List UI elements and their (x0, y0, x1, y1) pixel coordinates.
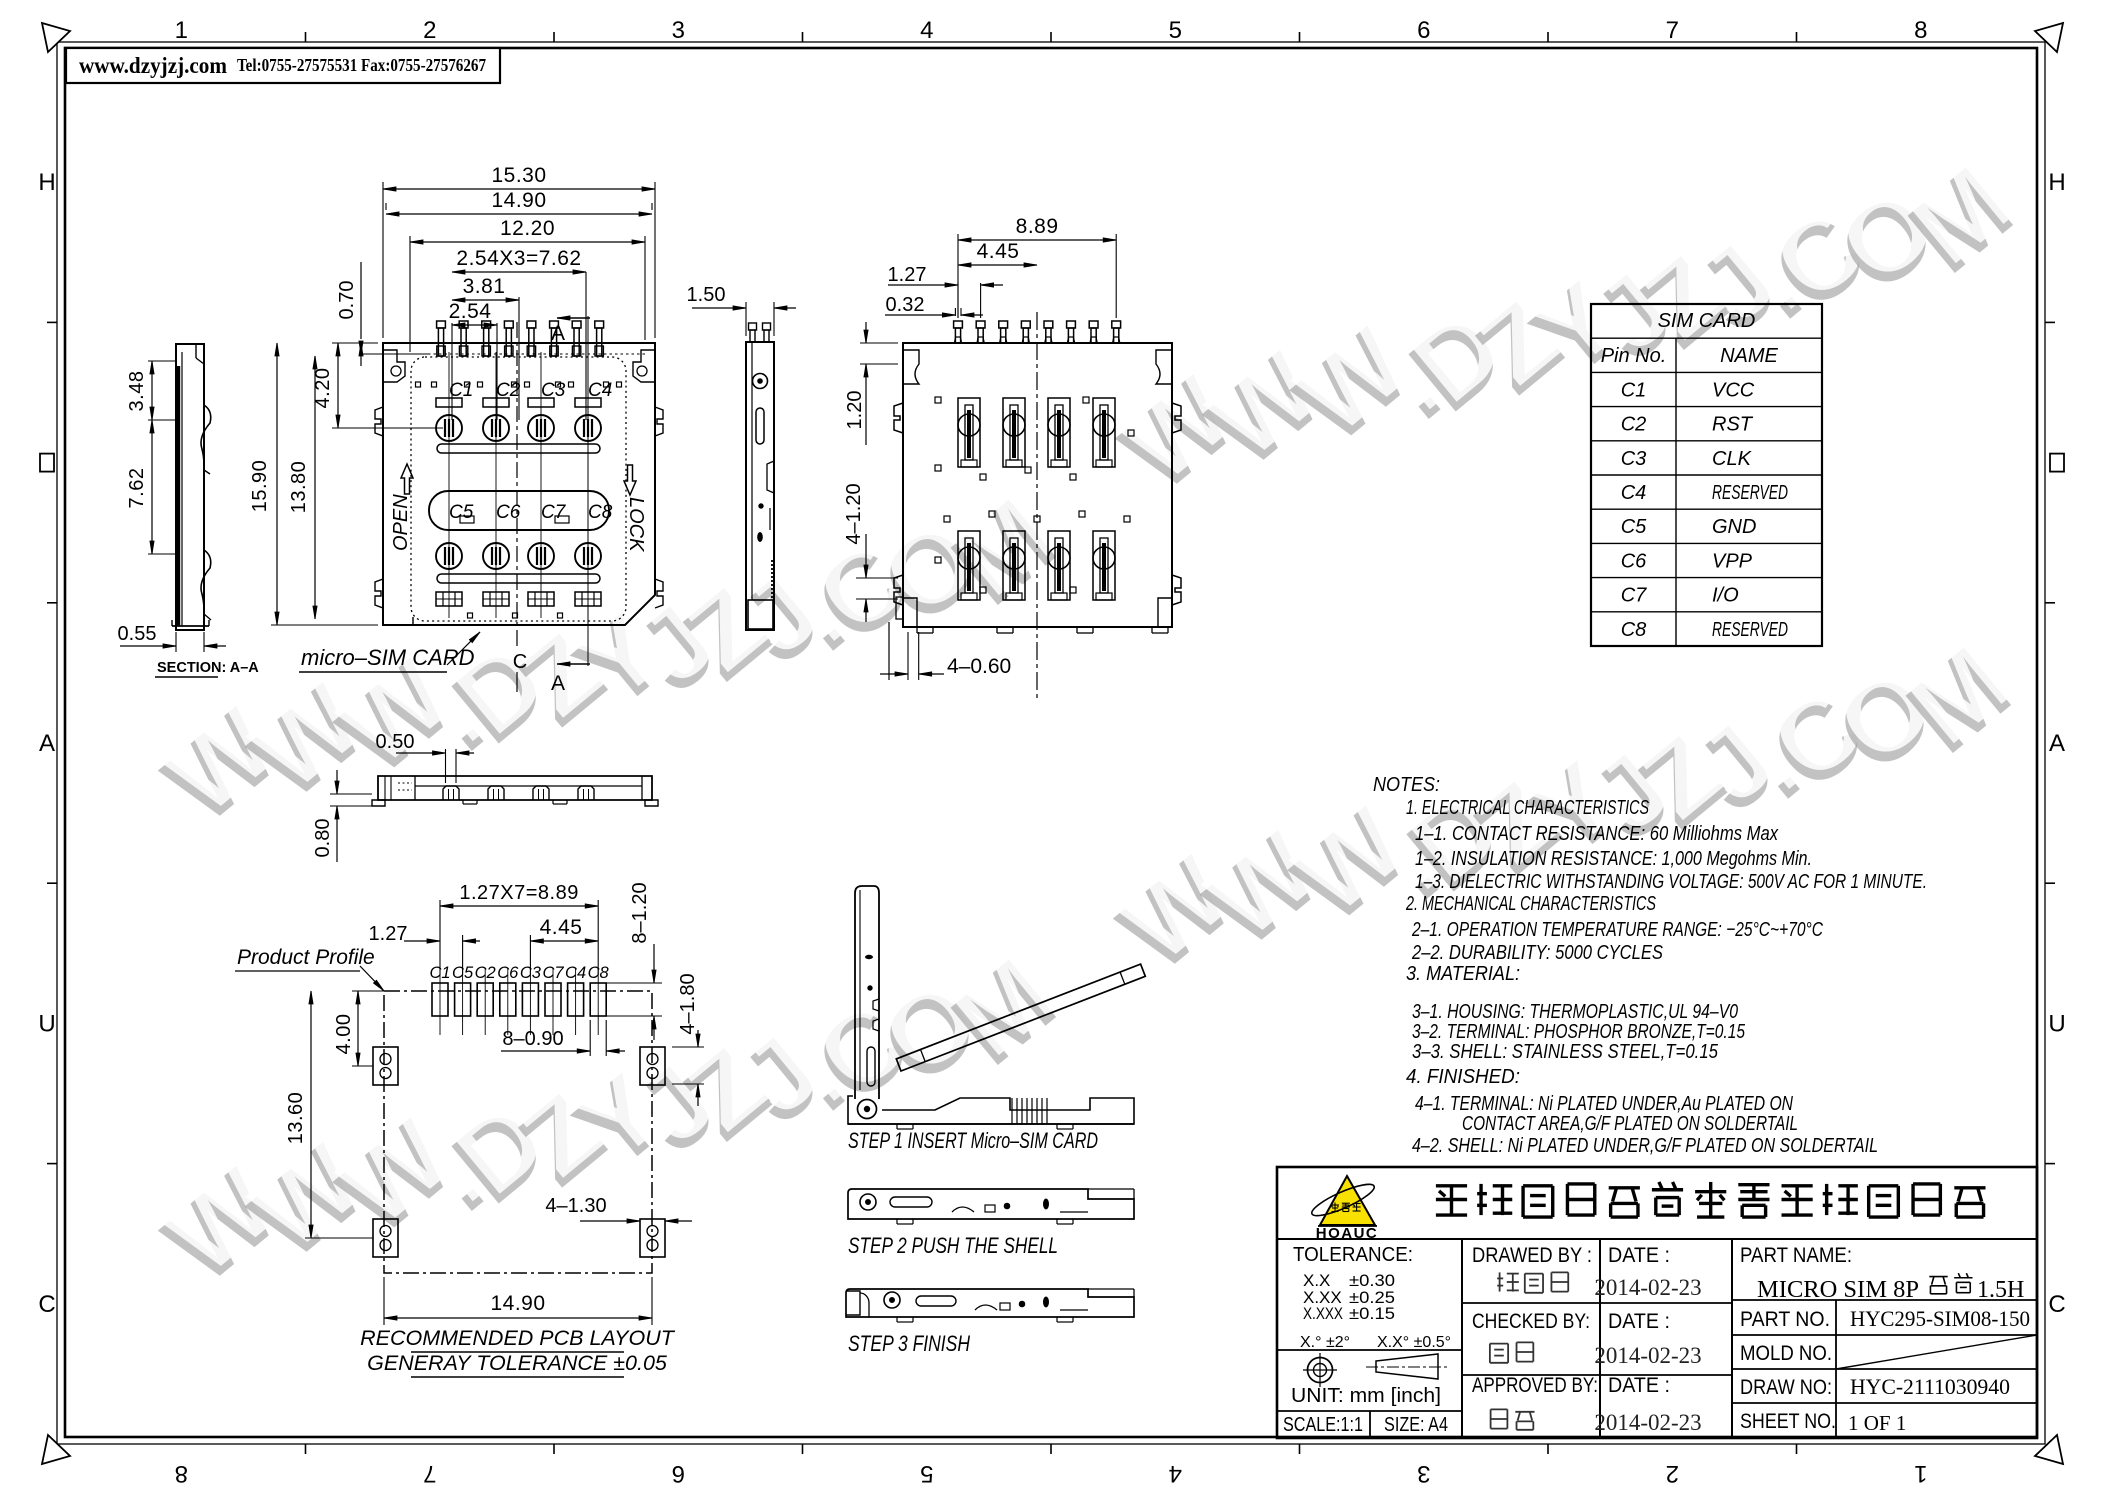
svg-text:1.27: 1.27 (888, 264, 927, 286)
svg-text:RESERVED: RESERVED (1712, 482, 1788, 504)
svg-text:4–2. SHELL: Ni PLATED UNDE: 4–2. SHELL: Ni PLATED UNDER,G/F PLATED O… (1412, 1134, 1878, 1157)
svg-text:UNIT: mm [inch]: UNIT: mm [inch] (1291, 1385, 1441, 1407)
svg-text:HYC-2111030940: HYC-2111030940 (1850, 1374, 2010, 1399)
svg-text:A: A (39, 730, 55, 757)
svg-text:C: C (38, 1291, 55, 1318)
svg-text:14.90: 14.90 (491, 189, 546, 212)
svg-text:Product Profile: Product Profile (237, 946, 375, 969)
svg-text:STEP 2 PUSH THE SHELL: STEP 2 PUSH THE SHELL (848, 1233, 1058, 1258)
svg-text:1: 1 (1914, 1460, 1927, 1487)
svg-text:PART NAME:: PART NAME: (1740, 1244, 1852, 1267)
svg-text:4.00: 4.00 (333, 1014, 355, 1055)
svg-text:3. MATERIAL:: 3. MATERIAL: (1406, 962, 1520, 985)
svg-text:0.55: 0.55 (118, 623, 157, 645)
svg-text:HOAUC: HOAUC (1316, 1225, 1379, 1242)
svg-text:8–0.90: 8–0.90 (502, 1028, 563, 1050)
svg-text:CLK: CLK (1712, 448, 1753, 470)
svg-text:GENERAY TOLERANCE ±0.05: GENERAY TOLERANCE ±0.05 (367, 1351, 668, 1375)
svg-text:X.XXX: X.XXX (1303, 1304, 1343, 1323)
svg-text:13.80: 13.80 (288, 461, 310, 514)
svg-text:1 OF 1: 1 OF 1 (1848, 1411, 1906, 1435)
svg-text:1: 1 (175, 17, 188, 44)
svg-text:C5: C5 (1621, 516, 1647, 538)
svg-text:DATE :: DATE : (1608, 1244, 1670, 1267)
svg-text:LOCK: LOCK (625, 497, 647, 553)
svg-text:APPROVED BY:: APPROVED BY: (1472, 1374, 1598, 1397)
svg-text:0.70: 0.70 (336, 281, 358, 320)
svg-text:C1: C1 (1621, 379, 1647, 401)
svg-text:SHEET NO.: SHEET NO. (1740, 1410, 1836, 1433)
svg-text:C3: C3 (1621, 448, 1647, 470)
svg-text:www.dzyjzj.com: www.dzyjzj.com (79, 53, 227, 78)
svg-text:2014-02-23: 2014-02-23 (1594, 1275, 1701, 1300)
svg-text:DATE :: DATE : (1608, 1310, 1670, 1333)
svg-text:STEP 1 INSERT Micro–SIM CA: STEP 1 INSERT Micro–SIM CARD (848, 1128, 1098, 1153)
svg-text:8.89: 8.89 (1016, 215, 1059, 238)
svg-text:micro–SIM CARD: micro–SIM CARD (301, 645, 475, 670)
svg-text:GND: GND (1712, 516, 1756, 538)
svg-text:X.X° ±0.5°: X.X° ±0.5° (1377, 1334, 1451, 1351)
svg-text:±0.15: ±0.15 (1349, 1304, 1395, 1323)
svg-text:H: H (2048, 169, 2065, 196)
svg-text:2: 2 (1666, 1460, 1679, 1487)
svg-text:1–2. INSULATION RESISTANCE:: 1–2. INSULATION RESISTANCE: 1,000 Megohm… (1415, 847, 1812, 870)
svg-text:SECTION: A–A: SECTION: A–A (157, 660, 259, 676)
svg-text:STEP 3 FINISH: STEP 3 FINISH (848, 1331, 970, 1356)
svg-text:4: 4 (920, 17, 933, 44)
svg-text:2: 2 (423, 17, 436, 44)
svg-text:2014-02-23: 2014-02-23 (1594, 1410, 1701, 1435)
svg-text:7.62: 7.62 (126, 468, 148, 509)
svg-text:1.50: 1.50 (687, 284, 726, 306)
svg-text:4–1.20: 4–1.20 (843, 483, 865, 544)
svg-text:C: C (513, 651, 527, 673)
svg-text:2.54X3=7.62: 2.54X3=7.62 (456, 247, 581, 270)
svg-text:HYC295-SIM08-150: HYC295-SIM08-150 (1850, 1306, 2030, 1331)
svg-text:RESERVED: RESERVED (1712, 619, 1788, 641)
svg-text:DRAW NO:: DRAW NO: (1740, 1376, 1832, 1399)
svg-text:1.27X7=8.89: 1.27X7=8.89 (459, 882, 579, 904)
svg-text:15.30: 15.30 (491, 164, 546, 187)
svg-text:H: H (38, 169, 55, 196)
svg-text:0.50: 0.50 (376, 731, 415, 753)
svg-text:I/O: I/O (1712, 585, 1739, 607)
svg-text:MOLD NO.: MOLD NO. (1740, 1342, 1832, 1365)
svg-text:C2: C2 (475, 964, 496, 982)
svg-text:A: A (2049, 730, 2065, 757)
svg-text:5: 5 (1169, 17, 1182, 44)
svg-text:6: 6 (1417, 17, 1430, 44)
svg-text:C4: C4 (1621, 482, 1647, 504)
svg-text:A: A (551, 672, 565, 695)
svg-text:12.20: 12.20 (500, 217, 555, 240)
svg-text:C2: C2 (1621, 414, 1647, 436)
svg-text:C6: C6 (1621, 550, 1647, 572)
svg-text:4–1.30: 4–1.30 (545, 1195, 606, 1217)
svg-text:7: 7 (1666, 17, 1679, 44)
svg-text:8: 8 (175, 1460, 188, 1487)
svg-text:2014-02-23: 2014-02-23 (1594, 1343, 1701, 1368)
svg-text:C7: C7 (542, 964, 564, 982)
svg-text:3.48: 3.48 (126, 371, 148, 412)
svg-text:3–3. SHELL: STAINLESS STEEL: 3–3. SHELL: STAINLESS STEEL,T=0.15 (1412, 1040, 1718, 1063)
svg-text:SIZE: A4: SIZE: A4 (1384, 1414, 1448, 1436)
svg-text:8: 8 (1914, 17, 1927, 44)
svg-text:5: 5 (920, 1460, 933, 1487)
svg-text:0.80: 0.80 (312, 819, 334, 858)
svg-text:1.27: 1.27 (369, 923, 408, 945)
svg-text:CONTACT AREA,G/F PLATED ON: CONTACT AREA,G/F PLATED ON SOLDERTAIL (1462, 1112, 1798, 1135)
svg-text:3: 3 (672, 17, 685, 44)
svg-text:6: 6 (672, 1460, 685, 1487)
svg-text:DRAWED BY :: DRAWED BY : (1472, 1244, 1592, 1267)
svg-text:2–1. OPERATION TEMPERATURE: 2–1. OPERATION TEMPERATURE RANGE: −25°C~… (1411, 918, 1823, 941)
svg-text:A: A (551, 322, 565, 345)
svg-text:C8: C8 (588, 502, 613, 523)
svg-text:NAME: NAME (1720, 345, 1778, 367)
svg-text:2. MECHANICAL CHARACTERISTIC: 2. MECHANICAL CHARACTERISTICS (1405, 892, 1656, 915)
svg-text:Tel:0755-27575531 Fax:0755-27: Tel:0755-27575531 Fax:0755-27576267 (237, 55, 486, 75)
svg-text:2–2. DURABILITY: 5000 CYCLE: 2–2. DURABILITY: 5000 CYCLES (1411, 941, 1663, 964)
svg-text:CHECKED BY:: CHECKED BY: (1472, 1310, 1590, 1333)
svg-text:C5: C5 (449, 502, 474, 523)
svg-text:C7: C7 (1621, 585, 1647, 607)
svg-text:13.60: 13.60 (285, 1092, 307, 1145)
svg-text:7: 7 (423, 1460, 436, 1487)
svg-text:0.32: 0.32 (886, 294, 925, 316)
svg-text:3: 3 (1417, 1460, 1430, 1487)
svg-text:8–1.20: 8–1.20 (629, 882, 651, 943)
svg-text:1–1. CONTACT RESISTANCE: 60: 1–1. CONTACT RESISTANCE: 60 Milliohms Ma… (1415, 822, 1779, 845)
svg-text:X.° ±2°: X.° ±2° (1300, 1334, 1350, 1351)
svg-text:PART NO.: PART NO. (1740, 1308, 1830, 1331)
svg-text:U: U (38, 1010, 55, 1037)
svg-text:C4: C4 (565, 964, 586, 982)
svg-text:2.54: 2.54 (449, 300, 492, 323)
svg-text:SCALE:1:1: SCALE:1:1 (1283, 1414, 1363, 1436)
svg-text:1. ELECTRICAL CHARACTERISTIC: 1. ELECTRICAL CHARACTERISTICS (1406, 796, 1649, 819)
svg-text:VCC: VCC (1712, 379, 1755, 401)
svg-text:NOTES:: NOTES: (1373, 773, 1440, 796)
svg-text:C7: C7 (541, 502, 567, 523)
svg-text:VPP: VPP (1712, 550, 1753, 572)
svg-text:1–3. DIELECTRIC WITHSTANDING: 1–3. DIELECTRIC WITHSTANDING VOLTAGE: 50… (1415, 870, 1927, 893)
svg-text:4–1.80: 4–1.80 (677, 973, 699, 1034)
svg-text:1.20: 1.20 (844, 391, 866, 430)
svg-text:C8: C8 (1621, 619, 1647, 641)
svg-text:RECOMMENDED PCB LAYOUT: RECOMMENDED PCB LAYOUT (360, 1326, 676, 1350)
svg-text:4. FINISHED:: 4. FINISHED: (1406, 1065, 1520, 1088)
svg-text:C: C (2048, 1291, 2065, 1318)
svg-text:TOLERANCE:: TOLERANCE: (1293, 1244, 1413, 1266)
svg-text:Pin No.: Pin No. (1601, 345, 1667, 367)
svg-text:15.90: 15.90 (249, 460, 271, 513)
svg-text:4: 4 (1169, 1460, 1182, 1487)
svg-text:DATE :: DATE : (1608, 1374, 1670, 1397)
svg-text:C6: C6 (497, 964, 519, 982)
svg-text:4.45: 4.45 (977, 240, 1020, 263)
svg-text:4.45: 4.45 (540, 916, 583, 939)
svg-text:14.90: 14.90 (490, 1292, 545, 1315)
svg-text:OPEN: OPEN (390, 494, 412, 551)
svg-text:SIM CARD: SIM CARD (1658, 310, 1756, 332)
svg-text:3.81: 3.81 (463, 275, 506, 298)
svg-text:4–0.60: 4–0.60 (947, 655, 1011, 678)
svg-text:RST: RST (1712, 414, 1754, 436)
svg-text:U: U (2048, 1010, 2065, 1037)
